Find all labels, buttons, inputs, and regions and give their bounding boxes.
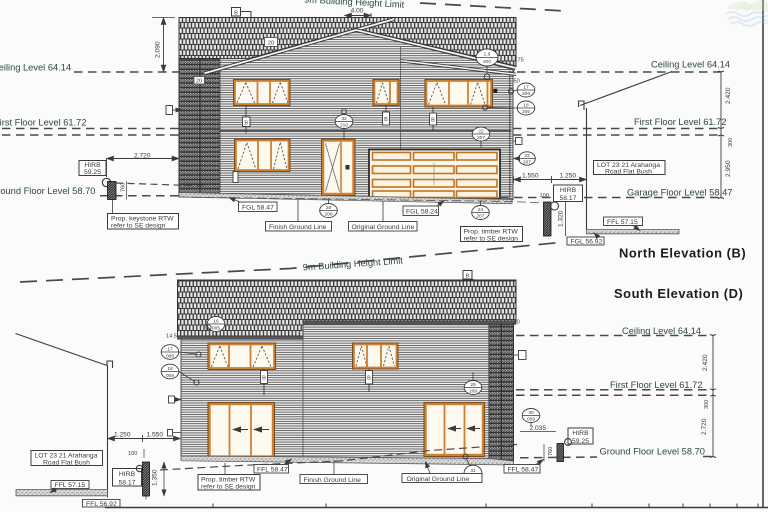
svg-text:LOT 23 21 Arahanga: LOT 23 21 Arahanga — [35, 453, 98, 460]
svg-text:HIRB: HIRB — [119, 471, 136, 478]
svg-text:58.17: 58.17 — [559, 195, 576, 202]
svg-text:300: 300 — [704, 400, 710, 409]
svg-text:2.950: 2.950 — [725, 160, 732, 177]
svg-text:B: B — [244, 121, 248, 127]
svg-text:300: 300 — [728, 138, 734, 147]
svg-text:4.00: 4.00 — [351, 8, 364, 15]
svg-text:B: B — [234, 11, 238, 17]
svg-text:Finish Ground Line: Finish Ground Line — [304, 477, 362, 484]
svg-text:18: 18 — [167, 366, 173, 372]
svg-text:29: 29 — [470, 382, 476, 388]
svg-text:59.25: 59.25 — [572, 438, 589, 445]
svg-text:207: 207 — [477, 135, 485, 141]
svg-text:208: 208 — [324, 212, 332, 218]
svg-text:B: B — [384, 117, 388, 123]
svg-text:59.25: 59.25 — [84, 169, 101, 176]
svg-text:North Elevation (B): North Elevation (B) — [619, 246, 746, 261]
svg-text:2.720: 2.720 — [701, 418, 708, 435]
svg-text:Ceiling Level 64.14: Ceiling Level 64.14 — [622, 326, 701, 336]
svg-text:14.5: 14.5 — [166, 334, 177, 340]
svg-text:2.090: 2.090 — [155, 41, 162, 58]
svg-text:22: 22 — [478, 129, 484, 135]
svg-text:HIRB: HIRB — [84, 162, 101, 169]
svg-text:009: 009 — [527, 417, 535, 423]
svg-text:HIRB: HIRB — [560, 187, 577, 194]
svg-text:30: 30 — [528, 410, 534, 416]
svg-text:1.6: 1.6 — [484, 52, 491, 58]
svg-text:Garage Floor Level 58.47: Garage Floor Level 58.47 — [627, 188, 732, 198]
svg-text:Original Ground Line: Original Ground Line — [352, 224, 415, 231]
svg-text:Prop. timber RTW: Prop. timber RTW — [201, 477, 256, 484]
svg-text:20: 20 — [196, 79, 202, 85]
svg-text:FFL 58.47: FFL 58.47 — [257, 467, 288, 474]
svg-text:28: 28 — [326, 205, 332, 211]
svg-text:210: 210 — [340, 123, 348, 129]
svg-text:refer to SE design: refer to SE design — [111, 223, 166, 230]
svg-text:Ceiling Level 64.14: Ceiling Level 64.14 — [651, 60, 730, 70]
svg-text:FGL 58.24: FGL 58.24 — [406, 209, 438, 216]
svg-text:58.17: 58.17 — [118, 480, 135, 487]
svg-text:First Floor Level 61.72: First Floor Level 61.72 — [634, 117, 727, 127]
svg-text:206: 206 — [522, 91, 530, 97]
svg-text:006: 006 — [166, 373, 174, 379]
svg-text:B: B — [431, 118, 435, 124]
svg-text:1.250: 1.250 — [560, 173, 577, 180]
svg-text:Ground Floor Level 58.70: Ground Floor Level 58.70 — [0, 186, 95, 196]
svg-text:1.550: 1.550 — [522, 173, 539, 180]
svg-text:Finish Ground Line: Finish Ground Line — [269, 224, 327, 231]
svg-text:HIRB: HIRB — [572, 430, 589, 437]
svg-text:Prop. timber RTW: Prop. timber RTW — [464, 229, 519, 236]
svg-text:South Elevation (D): South Elevation (D) — [614, 286, 743, 301]
svg-text:760: 760 — [121, 183, 127, 192]
svg-text:32: 32 — [341, 116, 347, 122]
svg-text:20: 20 — [268, 41, 274, 47]
svg-text:FGL 56.92: FGL 56.92 — [571, 239, 603, 246]
svg-text:2.035: 2.035 — [530, 425, 547, 432]
svg-text:FFL 58.47: FFL 58.47 — [508, 467, 539, 474]
svg-text:50: 50 — [514, 79, 520, 85]
svg-text:Prop. keystone RTW: Prop. keystone RTW — [111, 216, 174, 223]
svg-text:760: 760 — [548, 447, 554, 456]
svg-text:First Floor Level 61.72: First Floor Level 61.72 — [0, 118, 87, 128]
svg-text:FGL 58.47: FGL 58.47 — [242, 205, 274, 212]
svg-text:16: 16 — [213, 319, 219, 325]
svg-text:1.350: 1.350 — [152, 469, 159, 486]
svg-text:2.420: 2.420 — [725, 87, 732, 104]
svg-text:17: 17 — [523, 85, 529, 91]
svg-text:Road Flat Bush: Road Flat Bush — [605, 169, 652, 176]
svg-text:Road Flat Bush: Road Flat Bush — [43, 460, 90, 467]
svg-text:First Floor Level 61.72: First Floor Level 61.72 — [610, 380, 703, 390]
svg-text:18: 18 — [523, 103, 529, 109]
svg-text:Ceiling Level 64.14: Ceiling Level 64.14 — [0, 63, 71, 73]
svg-text:B: B — [466, 274, 470, 280]
svg-text:Original Ground Line: Original Ground Line — [407, 476, 470, 483]
svg-text:1.320: 1.320 — [558, 210, 565, 227]
svg-text:209: 209 — [469, 389, 477, 395]
svg-text:006: 006 — [166, 354, 174, 360]
svg-text:17: 17 — [167, 347, 173, 353]
svg-text:FFL 57.15: FFL 57.15 — [55, 482, 86, 489]
svg-text:005: 005 — [212, 326, 220, 332]
svg-text:207: 207 — [476, 214, 484, 220]
svg-text:206: 206 — [522, 109, 530, 115]
svg-text:refer to SE design: refer to SE design — [464, 236, 519, 243]
svg-text:2.420: 2.420 — [702, 354, 709, 371]
svg-text:20: 20 — [514, 320, 520, 326]
svg-text:Ground Floor Level 58.70: Ground Floor Level 58.70 — [600, 447, 705, 457]
svg-text:1.250: 1.250 — [114, 432, 131, 439]
svg-text:200: 200 — [483, 59, 491, 65]
svg-text:100: 100 — [540, 193, 549, 199]
svg-text:1.550: 1.550 — [147, 432, 164, 439]
svg-text:75: 75 — [518, 58, 524, 64]
svg-text:207: 207 — [523, 160, 531, 166]
svg-text:24: 24 — [478, 207, 484, 213]
svg-text:refer to SE design: refer to SE design — [201, 484, 256, 491]
svg-text:B: B — [262, 376, 266, 382]
svg-text:23: 23 — [524, 153, 530, 159]
svg-text:100: 100 — [128, 451, 137, 457]
svg-text:FFL 57.15: FFL 57.15 — [607, 219, 638, 226]
svg-text:B: B — [367, 376, 371, 382]
